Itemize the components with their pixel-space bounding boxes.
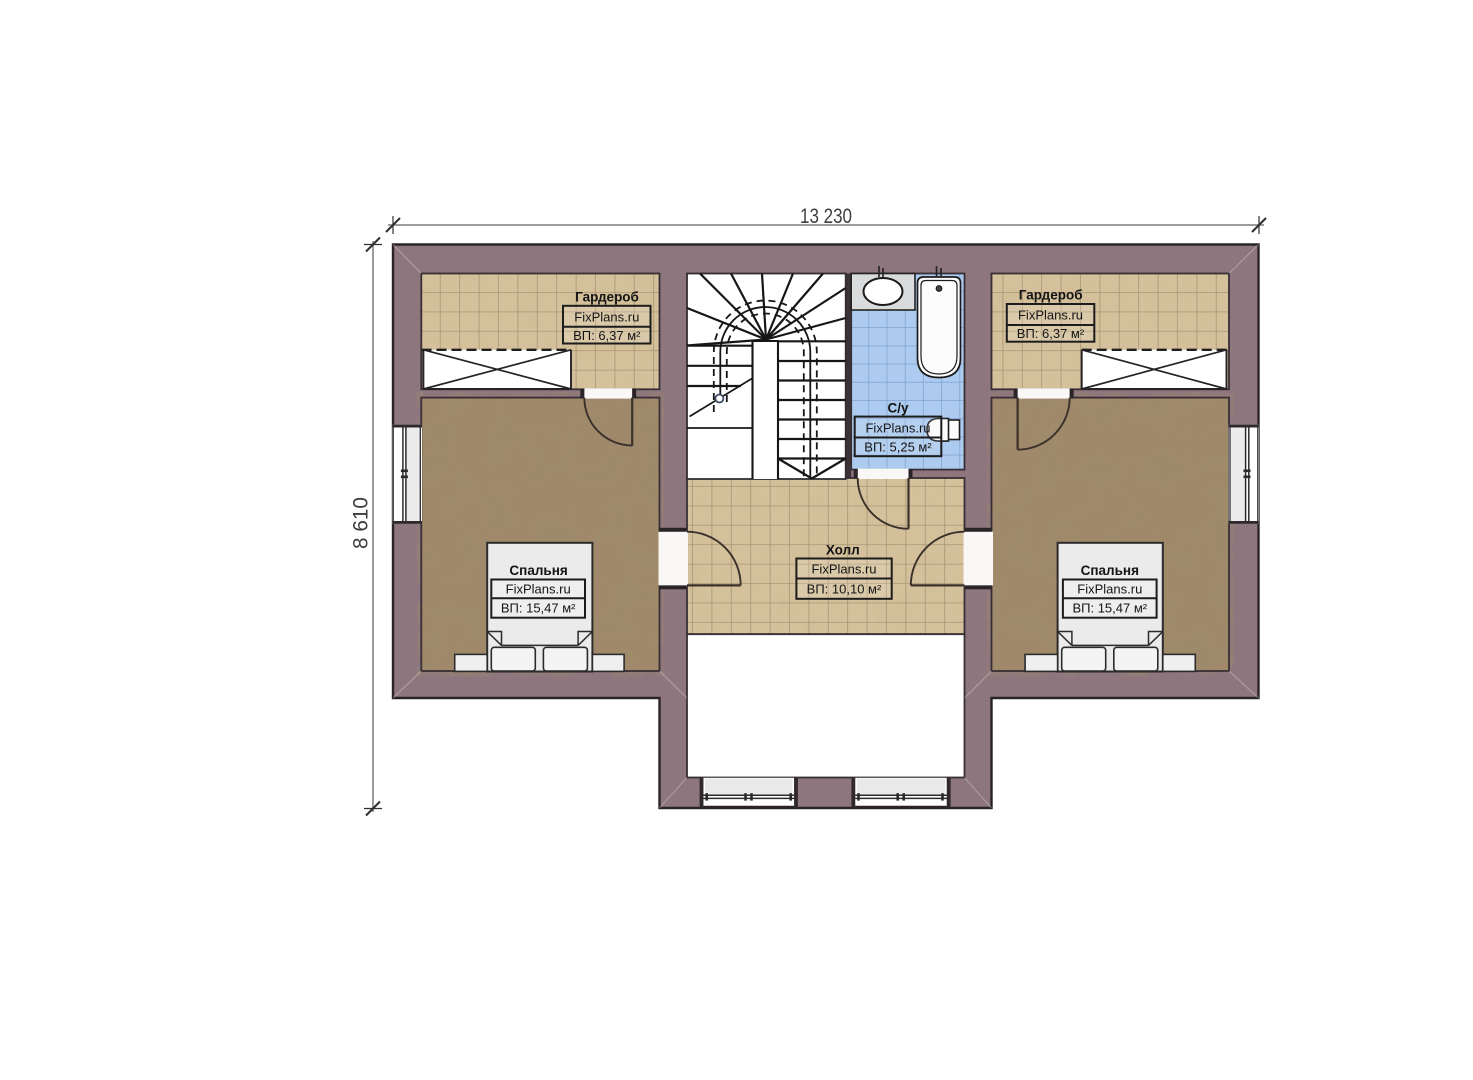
- svg-text:FixPlans.ru: FixPlans.ru: [1018, 308, 1083, 323]
- svg-text:Холл: Холл: [826, 543, 860, 558]
- svg-text:ВП: 10,10 м²: ВП: 10,10 м²: [807, 581, 882, 596]
- svg-text:Гардероб: Гардероб: [1019, 288, 1083, 303]
- svg-text:ВП: 15,47 м²: ВП: 15,47 м²: [1072, 600, 1147, 615]
- svg-text:FixPlans.ru: FixPlans.ru: [506, 582, 571, 597]
- svg-text:FixPlans.ru: FixPlans.ru: [574, 310, 639, 325]
- svg-text:ВП: 6,37 м²: ВП: 6,37 м²: [1017, 326, 1085, 341]
- svg-text:С/у: С/у: [887, 400, 909, 415]
- svg-text:FixPlans.ru: FixPlans.ru: [811, 562, 876, 577]
- svg-text:13 230: 13 230: [800, 205, 852, 228]
- svg-text:Спальня: Спальня: [509, 563, 567, 578]
- svg-text:ВП: 15,47 м²: ВП: 15,47 м²: [501, 600, 576, 615]
- svg-text:8 610: 8 610: [350, 497, 373, 549]
- svg-text:Спальня: Спальня: [1081, 563, 1139, 578]
- svg-text:ВП: 6,37 м²: ВП: 6,37 м²: [573, 328, 641, 343]
- svg-text:Гардероб: Гардероб: [575, 290, 639, 305]
- svg-text:ВП: 5,25 м²: ВП: 5,25 м²: [864, 439, 932, 454]
- svg-text:FixPlans.ru: FixPlans.ru: [865, 420, 930, 435]
- svg-text:FixPlans.ru: FixPlans.ru: [1077, 582, 1142, 597]
